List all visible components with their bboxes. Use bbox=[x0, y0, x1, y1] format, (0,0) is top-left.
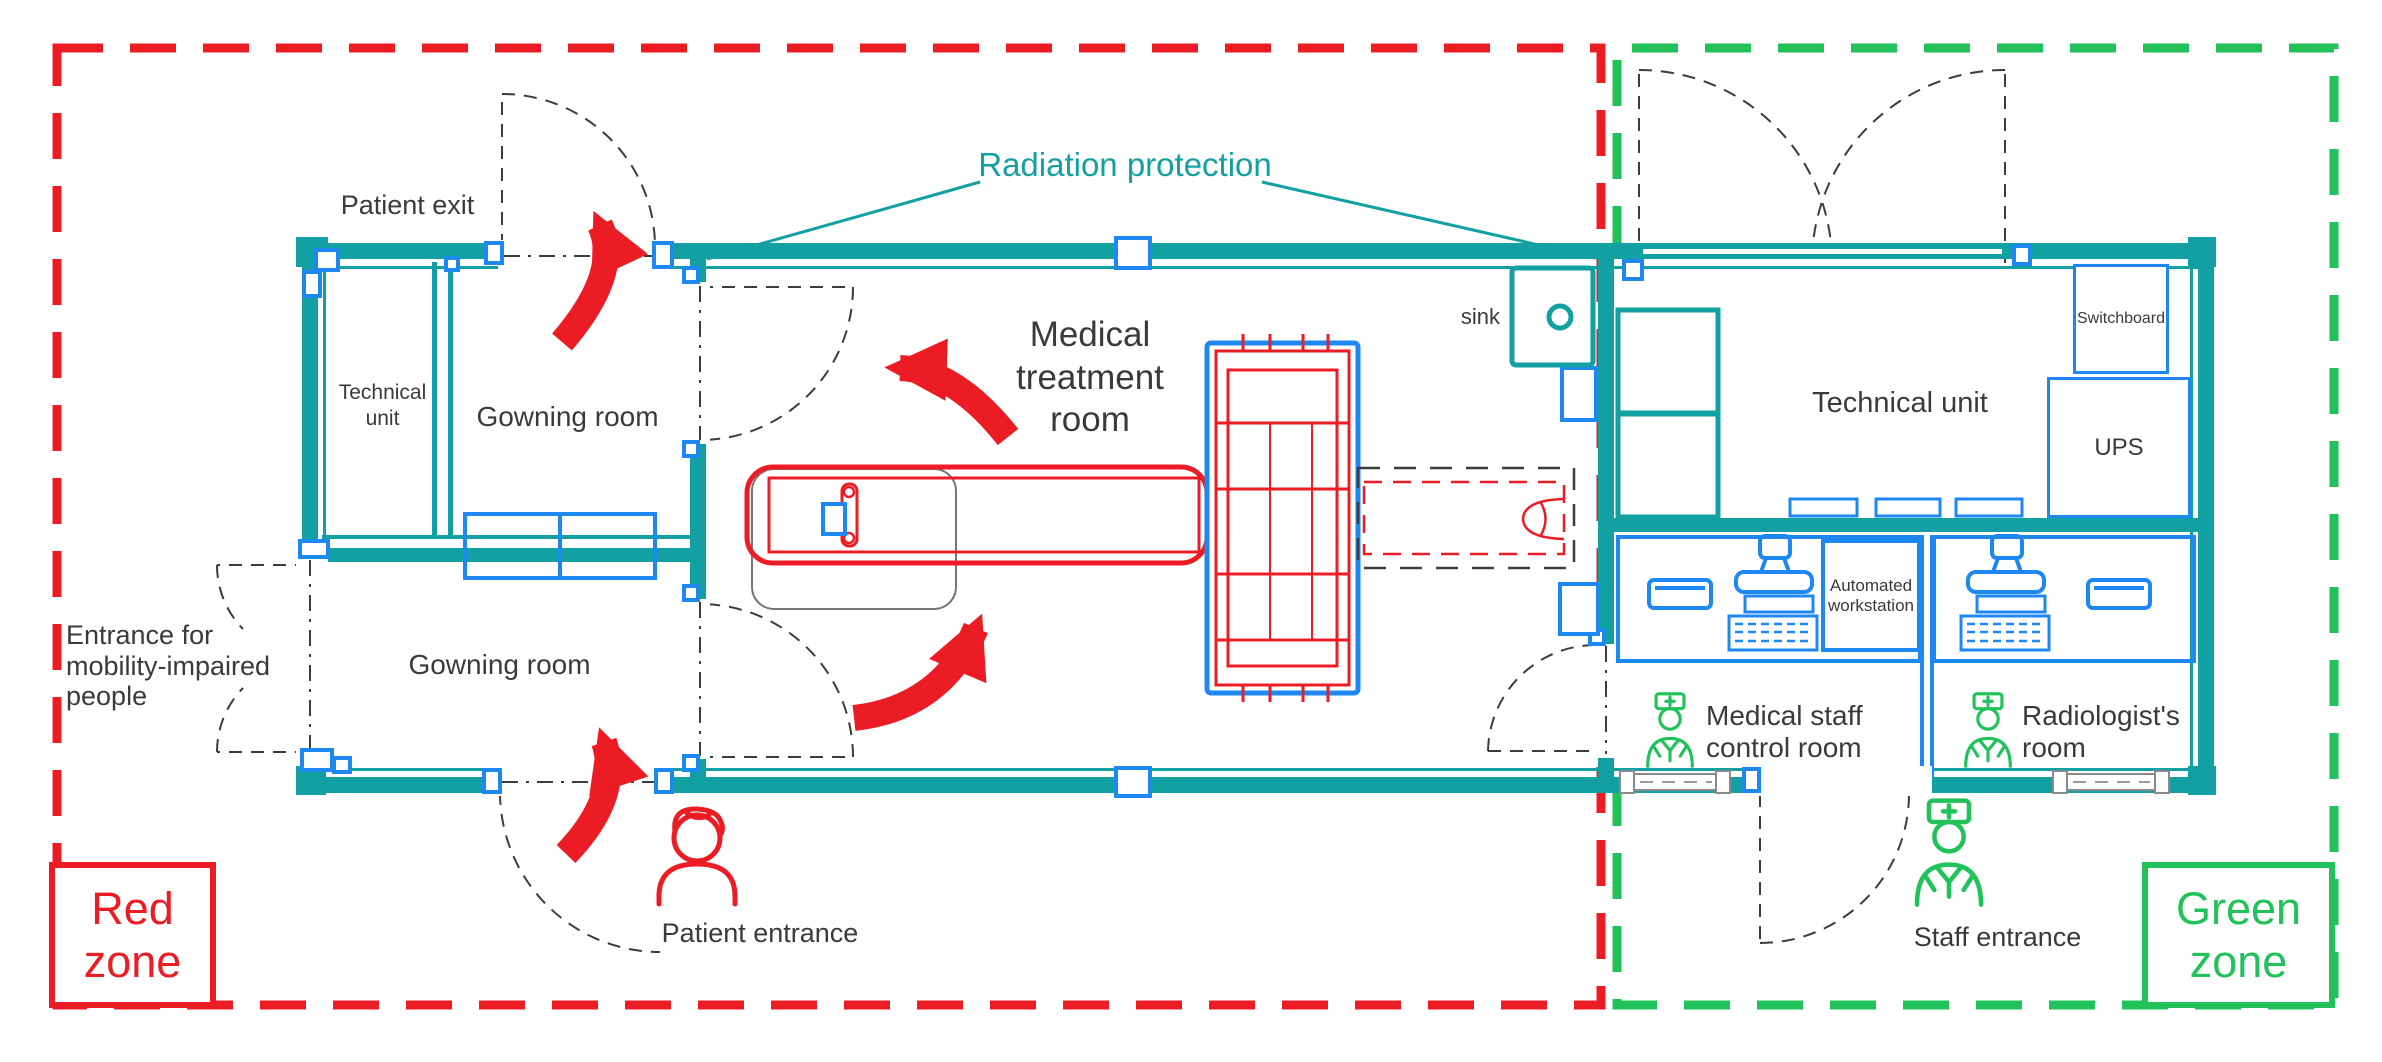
patient-icon bbox=[659, 809, 735, 904]
control-window-1 bbox=[1562, 368, 1596, 420]
radiologist-desk bbox=[1934, 537, 2194, 661]
control-window-2 bbox=[1560, 584, 1598, 634]
doctor-icon bbox=[1917, 801, 1981, 905]
monitor-3 bbox=[1956, 499, 2022, 516]
room-label-technical-unit-left: Technical unit bbox=[330, 380, 435, 433]
desk-tray-2 bbox=[2088, 580, 2150, 608]
flow-arrows bbox=[562, 225, 1008, 854]
cabinet-2 bbox=[1618, 414, 1718, 517]
monitor-1 bbox=[1790, 499, 1857, 516]
mobility-entrance-label: Entrance for mobility-impaired people bbox=[66, 620, 291, 712]
patient-exit-door-swing bbox=[502, 94, 655, 247]
patient-exit-label: Patient exit bbox=[325, 190, 490, 222]
room-label-gowning-upper: Gowning room bbox=[460, 400, 675, 433]
treatment-window-top bbox=[1116, 238, 1150, 268]
cabinet-1 bbox=[1618, 310, 1718, 413]
staff-rooms-wall bbox=[1614, 518, 2198, 532]
room-label-medical-treatment: Medical treatment room bbox=[990, 314, 1190, 442]
right-wall bbox=[2198, 243, 2214, 793]
lockers bbox=[465, 514, 655, 578]
gowning-lower-door-swing bbox=[700, 604, 853, 757]
monitor-2 bbox=[1876, 499, 1940, 516]
staff-entrance-label: Staff entrance bbox=[1880, 922, 2115, 954]
gowning-to-treatment-arrow bbox=[854, 628, 976, 718]
ups-box: UPS bbox=[2047, 377, 2191, 518]
control-joystick-1 bbox=[1736, 536, 1812, 592]
patient-couch bbox=[747, 467, 1207, 563]
control-joystick-2 bbox=[1968, 536, 2044, 592]
patient-entrance-label: Patient entrance bbox=[640, 918, 880, 950]
tech-door-left-swing bbox=[1639, 70, 1832, 263]
room-label-technical-unit-right: Technical unit bbox=[1800, 386, 2000, 420]
gowning-divider-wall bbox=[304, 548, 697, 562]
keyboard-2 bbox=[1961, 596, 2049, 650]
staff-entrance-door-swing bbox=[1760, 794, 1909, 943]
couch-extended-position bbox=[1358, 468, 1574, 568]
floor-plan: Patient exit Radiation protection Medica… bbox=[0, 0, 2382, 1062]
treatment-window-bottom bbox=[1116, 768, 1150, 796]
radiation-protection-label: Radiation protection bbox=[955, 146, 1295, 185]
tech-door-right-swing bbox=[1812, 70, 2005, 263]
entrance-flow-arrow bbox=[566, 742, 608, 854]
switchboard-box: Switchboard bbox=[2073, 264, 2169, 374]
gowning-upper-door-swing bbox=[700, 287, 853, 440]
room-label-medical-staff: Medical staff control room bbox=[1706, 700, 1891, 763]
room-label-radiologist: Radiologist's room bbox=[2022, 700, 2200, 763]
keyboard-1 bbox=[1729, 596, 1817, 650]
sink-label: sink bbox=[1396, 304, 1500, 330]
room-label-gowning-lower: Gowning room bbox=[392, 648, 607, 681]
red-zone-label: Red zone bbox=[49, 862, 216, 1008]
doctor-icon bbox=[1648, 694, 1693, 766]
sink bbox=[1512, 268, 1593, 365]
control-room-door-swing bbox=[1488, 645, 1598, 751]
desk-tray-1 bbox=[1649, 580, 1711, 608]
automated-workstation-box: Automated workstation bbox=[1821, 539, 1921, 652]
green-zone-label: Green zone bbox=[2142, 862, 2335, 1008]
headrest bbox=[1523, 499, 1564, 539]
doctor-icon bbox=[1966, 694, 2011, 766]
